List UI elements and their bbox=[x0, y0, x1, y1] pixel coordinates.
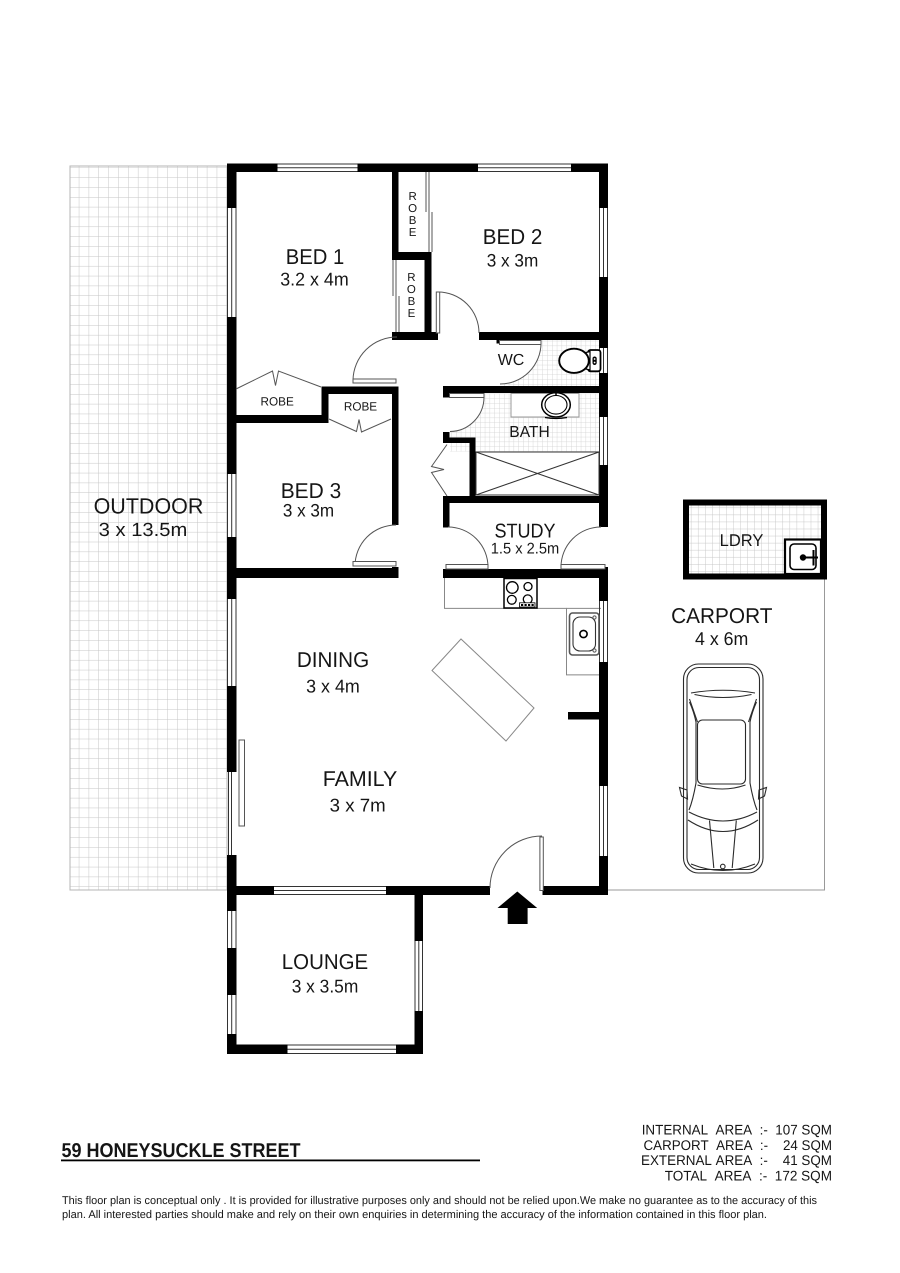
svg-text:DINING: DINING bbox=[297, 648, 369, 672]
svg-text:3 x 13.5m: 3 x 13.5m bbox=[99, 520, 188, 541]
svg-text:WC: WC bbox=[498, 352, 525, 369]
svg-text:BED 3: BED 3 bbox=[281, 479, 342, 503]
svg-text:59 HONEYSUCKLE STREET: 59 HONEYSUCKLE STREET bbox=[62, 1140, 301, 1162]
svg-text:OUTDOOR: OUTDOOR bbox=[94, 494, 204, 519]
svg-text:FAMILY: FAMILY bbox=[323, 767, 398, 791]
svg-text:INTERNAL AREA :- 107 SQM: INTERNAL AREA :- 107 SQM bbox=[642, 1122, 832, 1138]
svg-text:4 x 6m: 4 x 6m bbox=[695, 628, 748, 649]
svg-text:plan. All interested parties s: plan. All interested parties should make… bbox=[62, 1209, 767, 1221]
svg-text:1.5 x 2.5m: 1.5 x 2.5m bbox=[491, 541, 560, 558]
svg-text:3.2 x 4m: 3.2 x 4m bbox=[280, 269, 349, 290]
svg-text:3 x 7m: 3 x 7m bbox=[330, 795, 386, 816]
svg-text:ROBE: ROBE bbox=[344, 400, 377, 414]
svg-text:CARPORT: CARPORT bbox=[671, 604, 772, 628]
svg-text:BED 2: BED 2 bbox=[483, 225, 543, 249]
svg-text:BED 1: BED 1 bbox=[286, 245, 345, 269]
svg-text:CARPORT AREA :- 24 SQM: CARPORT AREA :- 24 SQM bbox=[644, 1137, 833, 1153]
svg-text:ROBE: ROBE bbox=[407, 272, 416, 320]
svg-text:EXTERNAL AREA :- 41 SQM: EXTERNAL AREA :- 41 SQM bbox=[641, 1152, 832, 1168]
svg-text:ROBE: ROBE bbox=[408, 191, 417, 239]
svg-text:3 x 4m: 3 x 4m bbox=[306, 676, 360, 697]
svg-text:ROBE: ROBE bbox=[261, 395, 294, 409]
svg-text:3 x 3.5m: 3 x 3.5m bbox=[292, 976, 359, 997]
svg-text:3 x 3m: 3 x 3m bbox=[487, 250, 539, 270]
svg-text:BATH: BATH bbox=[509, 424, 549, 441]
svg-text:LDRY: LDRY bbox=[720, 531, 764, 550]
svg-text:STUDY: STUDY bbox=[494, 521, 555, 543]
svg-text:TOTAL AREA :- 172 SQM: TOTAL AREA :- 172 SQM bbox=[665, 1167, 832, 1183]
svg-text:LOUNGE: LOUNGE bbox=[282, 950, 368, 974]
svg-text:This floor plan is conceptual: This floor plan is conceptual only . It … bbox=[62, 1195, 817, 1207]
svg-text:3 x 3m: 3 x 3m bbox=[283, 501, 334, 521]
